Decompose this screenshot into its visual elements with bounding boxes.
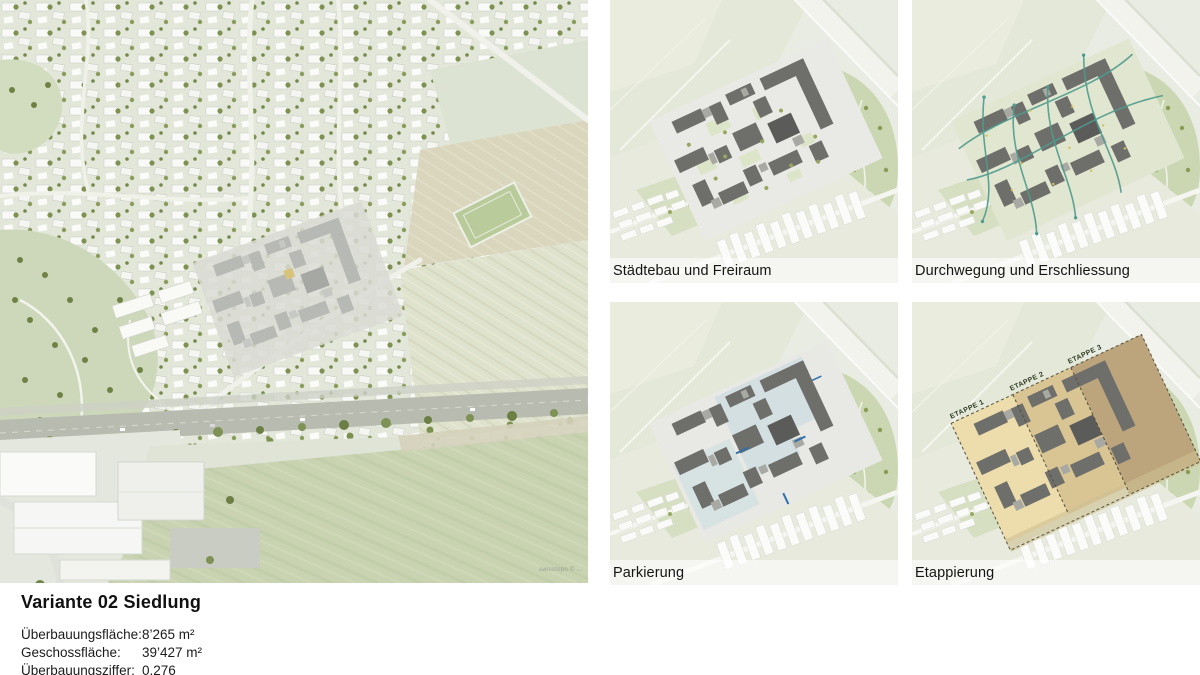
- panel-label-durchwegung: Durchwegung und Erschliessung: [912, 258, 1200, 283]
- site-plan-staedtebau: [610, 0, 898, 283]
- site-plan-durchwegung: [912, 0, 1200, 283]
- map-attribution: swisstopo © …: [539, 567, 583, 573]
- slide-caption: Variante 02 Siedlung Überbauungsfläche: …: [21, 592, 202, 675]
- main-aerial-render: swisstopo © …: [0, 0, 588, 583]
- variant-title: Variante 02 Siedlung: [21, 592, 202, 613]
- aerial-render-illustration: [0, 0, 588, 583]
- site-plan-parkierung: [610, 302, 898, 585]
- stat-row-geschossflaeche: Geschossfläche: 39’427 m²: [21, 644, 202, 662]
- panel-label-staedtebau: Städtebau und Freiraum: [610, 258, 898, 283]
- stats-table: Überbauungsfläche: 8’265 m² Geschossfläc…: [21, 626, 202, 675]
- stat-value: 0.276: [142, 662, 176, 675]
- panel-parkierung: Parkierung: [610, 302, 898, 585]
- stat-label: Geschossfläche:: [21, 644, 142, 662]
- stat-row-ueberbauungsflaeche: Überbauungsfläche: 8’265 m²: [21, 626, 202, 644]
- stat-value: 39’427 m²: [142, 644, 202, 662]
- panel-staedtebau-freiraum: Städtebau und Freiraum: [610, 0, 898, 283]
- stat-value: 8’265 m²: [142, 626, 195, 644]
- panel-label-parkierung: Parkierung: [610, 560, 898, 585]
- stat-label: Überbauungsfläche:: [21, 626, 142, 644]
- panel-label-etappierung: Etappierung: [912, 560, 1200, 585]
- stat-label: Überbauungsziffer:: [21, 662, 142, 675]
- site-plan-etappierung: ETAPPE 1 ETAPPE 2 ETAPPE 3: [912, 302, 1200, 585]
- panel-durchwegung-erschliessung: Durchwegung und Erschliessung: [912, 0, 1200, 283]
- stat-row-ueberbauungsziffer: Überbauungsziffer: 0.276: [21, 662, 202, 675]
- panel-etappierung: ETAPPE 1 ETAPPE 2 ETAPPE 3 Etappierung: [912, 302, 1200, 585]
- presentation-slide: swisstopo © …: [0, 0, 1200, 675]
